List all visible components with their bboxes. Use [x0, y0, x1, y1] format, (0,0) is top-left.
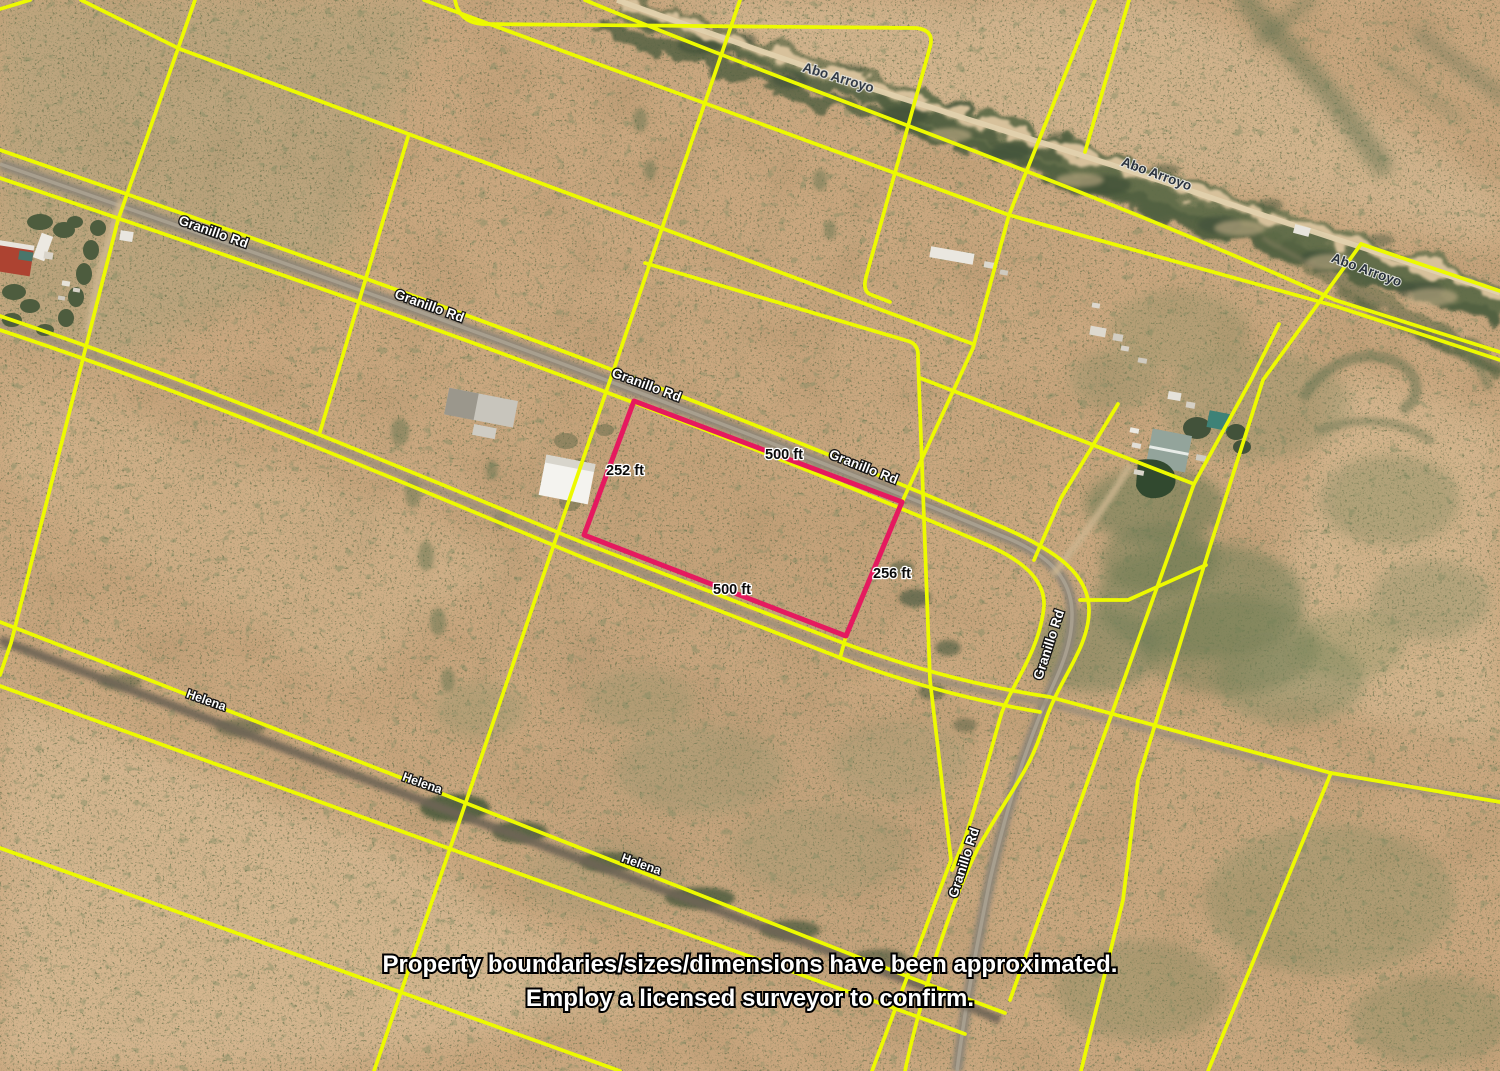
- svg-text:500 ft: 500 ft: [765, 447, 803, 463]
- svg-text:Employ a licensed surveyor to: Employ a licensed surveyor to confirm.: [526, 985, 974, 1012]
- svg-text:Property boundaries/sizes/dime: Property boundaries/sizes/dimensions hav…: [383, 951, 1118, 978]
- svg-text:252 ft: 252 ft: [606, 463, 644, 479]
- svg-text:256 ft: 256 ft: [873, 566, 911, 582]
- svg-text:500 ft: 500 ft: [713, 582, 751, 598]
